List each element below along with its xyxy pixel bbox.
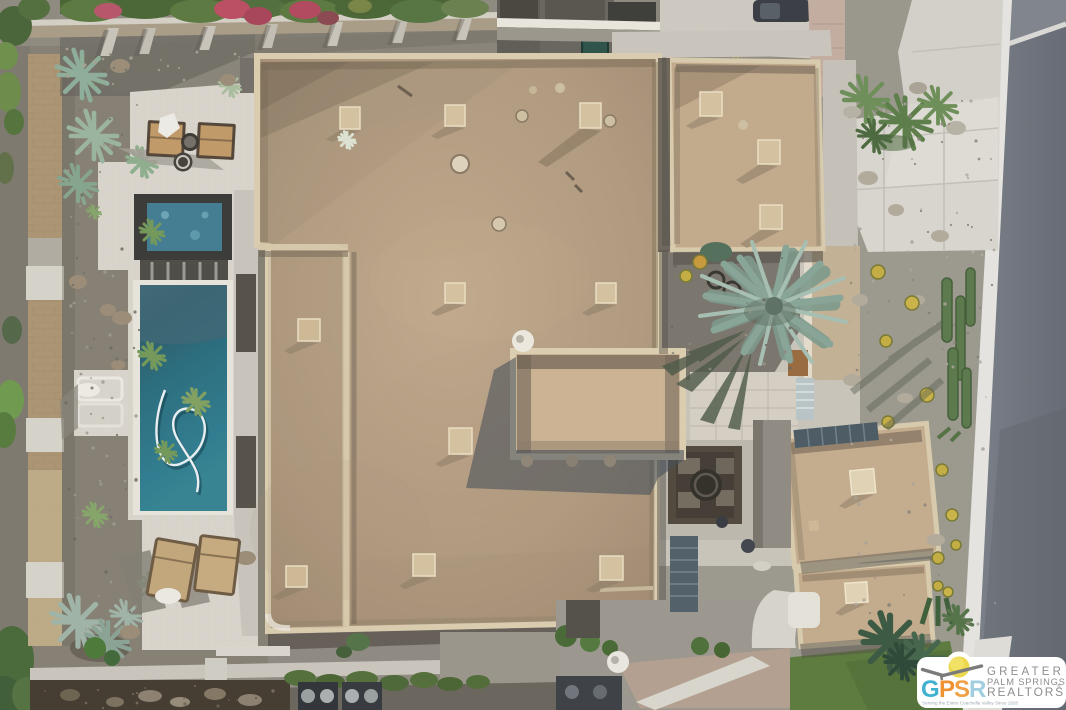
svg-text:S: S bbox=[954, 676, 970, 703]
svg-text:P: P bbox=[939, 676, 955, 703]
svg-text:®: ® bbox=[1057, 683, 1061, 690]
svg-text:G: G bbox=[921, 676, 940, 703]
svg-text:Serving the Entire Coachella V: Serving the Entire Coachella Valley Sinc… bbox=[922, 701, 1018, 706]
svg-text:R: R bbox=[969, 676, 986, 703]
svg-text:REALTORS: REALTORS bbox=[987, 685, 1065, 699]
